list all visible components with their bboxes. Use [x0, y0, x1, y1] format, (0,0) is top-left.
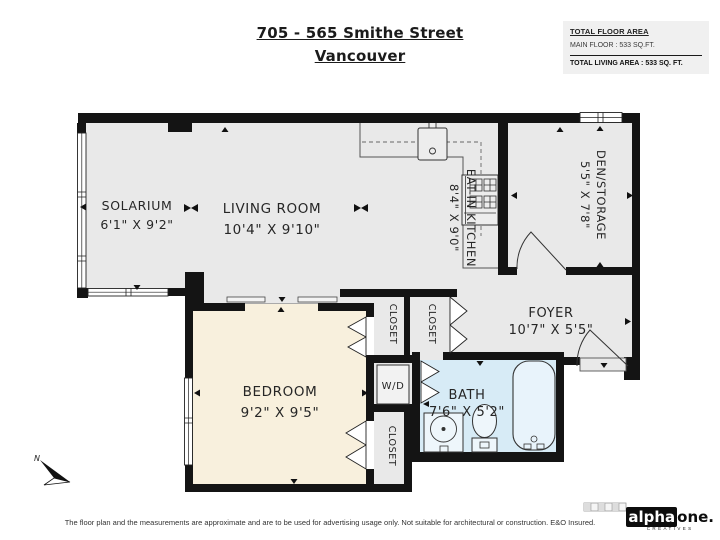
foyer-dims: 10'7" X 5'5"	[509, 323, 594, 338]
solarium-dims: 6'1" X 9'2"	[100, 217, 173, 232]
living-room-name: LIVING ROOM	[223, 201, 321, 217]
bathtub-icon	[513, 361, 555, 450]
logo-part-one: one.	[677, 508, 714, 526]
closet1-label: CLOSET	[387, 304, 398, 345]
logo-part-alpha: alpha	[626, 507, 677, 527]
den-name: DEN/STORAGE	[594, 150, 608, 240]
kitchen-dims: 8'4" X 9'0"	[447, 184, 461, 252]
scale-bar-icon	[584, 503, 626, 511]
den-dims: 5'5" X 7'8"	[578, 161, 592, 229]
bath-name: BATH	[449, 388, 486, 403]
bath-dims: 7'6" X 5'2"	[429, 405, 505, 420]
kitchen-name: EAT-IN KITCHEN	[464, 169, 478, 267]
floorplan-drawing: N SOLARIUM 6'1" X 9'2" LIVING ROOM 10'4"…	[0, 0, 720, 540]
bedroom-dims: 9'2" X 9'5"	[241, 405, 320, 421]
bedroom-name: BEDROOM	[243, 384, 318, 400]
closet2-label: CLOSET	[426, 304, 437, 345]
floorplan-page: 705 - 565 Smithe Street Vancouver TOTAL …	[0, 0, 720, 540]
north-arrow-icon: N	[34, 454, 70, 485]
laundry-label: W/D	[382, 381, 405, 392]
north-label: N	[34, 454, 40, 463]
solarium-bottom-window	[88, 289, 168, 297]
foyer-name: FOYER	[528, 306, 573, 321]
bedroom-window	[185, 378, 193, 465]
company-logo: alphaone. CREATIVES	[626, 510, 714, 532]
living-room-dims: 10'4" X 9'10"	[223, 222, 320, 238]
den-window	[580, 113, 622, 123]
solarium-left-window	[78, 133, 87, 288]
closet3-label: CLOSET	[386, 426, 397, 467]
logo-tagline: CREATIVES	[626, 527, 714, 532]
disclaimer-text: The floor plan and the measurements are …	[10, 518, 650, 527]
solarium-name: SOLARIUM	[102, 198, 173, 213]
logo-wordmark: alphaone.	[626, 510, 714, 525]
